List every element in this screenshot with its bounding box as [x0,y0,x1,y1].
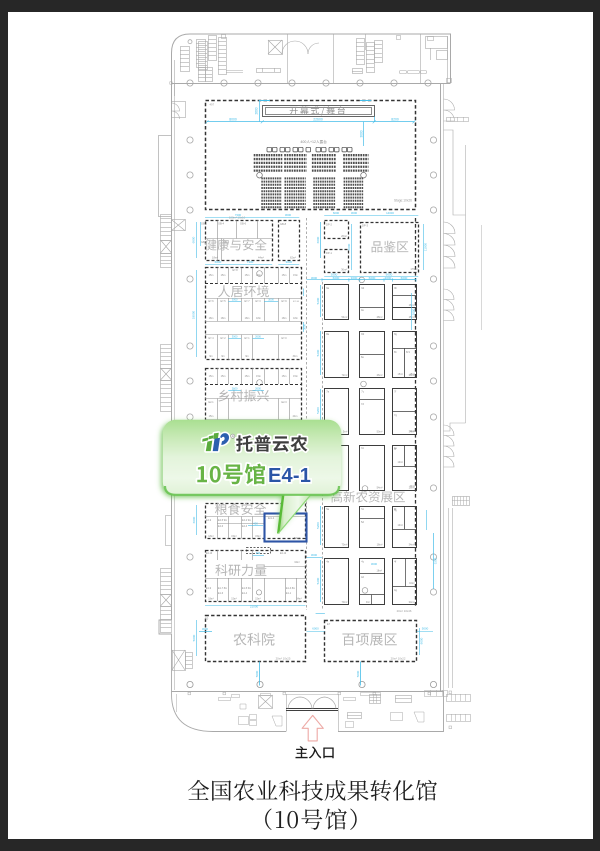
svg-text:2600: 2600 [255,107,259,114]
svg-text:26m²: 26m² [341,234,347,238]
svg-text:15m²: 15m² [231,598,237,601]
svg-text:E1-3 8m: E1-3 8m [286,587,295,590]
svg-text:18000: 18000 [192,310,196,319]
svg-text:20m² 10x25: 20m² 10x25 [276,657,291,661]
svg-text:3000: 3000 [311,276,318,280]
svg-text:E7-3: E7-3 [255,300,261,303]
svg-text:E1-9: E1-9 [206,587,212,590]
svg-text:3000: 3000 [285,213,292,217]
svg-text:E4-10: E4-10 [206,553,213,555]
svg-text:15m: 15m [209,415,214,418]
svg-text:E7-0: E7-0 [281,337,287,340]
svg-text:62m²: 62m² [290,256,296,260]
svg-text:3000: 3000 [202,627,209,631]
svg-text:6f: 6f [394,448,396,451]
svg-text:7a: 7a [326,390,329,394]
svg-text:6800: 6800 [192,236,196,243]
svg-text:3000: 3000 [385,276,392,280]
svg-text:8e: 8e [361,355,364,359]
svg-text:E7-8: E7-8 [232,269,238,272]
svg-text:8i 9: 8i 9 [406,351,411,354]
svg-text:15m: 15m [245,375,250,378]
svg-text:34m: 34m [293,355,298,358]
svg-text:8a: 8a [326,332,329,336]
svg-text:E1-5 6m: E1-5 6m [242,587,251,590]
svg-text:34m²: 34m² [409,600,415,604]
svg-text:7c: 7c [361,390,364,394]
svg-text:3000: 3000 [351,211,358,215]
svg-text:GB-2: GB-2 [201,222,208,226]
svg-text:7g: 7g [394,413,397,417]
svg-text:E7-10: E7-10 [293,301,300,303]
svg-text:5200: 5200 [316,577,320,584]
svg-text:54m²: 54m² [294,536,300,540]
svg-text:E4-12: E4-12 [280,553,287,555]
svg-text:34m²: 34m² [409,543,415,547]
svg-text:9m: 9m [209,355,212,358]
svg-text:176m²: 176m² [410,267,417,271]
svg-text:E1-4: E1-4 [242,592,248,595]
svg-text:8200: 8200 [391,118,399,122]
svg-text:5200: 5200 [316,297,320,304]
svg-text:18m: 18m [245,317,250,320]
svg-text:54m²: 54m² [341,315,347,319]
svg-text:3000: 3000 [232,298,238,302]
svg-text:5m²: 5m² [343,430,348,434]
svg-text:E4-3: E4-3 [242,525,248,528]
svg-text:2600: 2600 [255,335,261,339]
svg-text:E7-6: E7-6 [208,300,214,303]
svg-text:E4-1: E4-1 [268,516,275,520]
svg-text:15m: 15m [293,274,298,277]
svg-text:E7-1: E7-1 [244,337,250,340]
svg-text:5000: 5000 [356,670,360,677]
svg-text:7f: 7f [394,390,396,394]
svg-text:6000: 6000 [369,276,376,280]
svg-text:6000: 6000 [347,243,351,250]
svg-text:E4-6: E4-6 [218,525,224,528]
svg-text:15m²: 15m² [398,373,404,376]
svg-text:20m² 10x22: 20m² 10x22 [391,657,406,661]
svg-text:15m: 15m [245,274,250,277]
svg-text:11000: 11000 [423,243,427,251]
svg-text:15m: 15m [256,375,261,378]
svg-text:9000: 9000 [419,637,423,644]
svg-text:9h: 9h [394,286,397,290]
svg-text:400: 400 [253,521,258,525]
svg-text:4c: 4c [361,560,364,564]
svg-text:20m² 10x46: 20m² 10x46 [397,609,412,613]
svg-text:15m²: 15m² [231,535,237,538]
svg-text:5200: 5200 [316,349,320,356]
svg-text:6000: 6000 [215,260,222,264]
svg-text:70m²: 70m² [341,543,347,547]
svg-text:5g: 5g [394,509,397,512]
svg-text:4f: 4f [394,560,396,564]
svg-text:21000: 21000 [250,605,259,609]
svg-text:3000: 3000 [411,308,415,315]
svg-text:E7-2: E7-2 [220,337,226,340]
svg-text:54m²: 54m² [377,486,383,490]
svg-text:15m²: 15m² [255,598,261,601]
svg-text:18m: 18m [209,317,214,320]
svg-text:E7-4: E7-4 [208,337,214,340]
svg-text:34m²: 34m² [294,561,300,564]
svg-text:26m²: 26m² [377,373,383,377]
svg-text:36m²: 36m² [341,268,347,272]
svg-text:100m² 10x10: 100m² 10x10 [229,216,246,220]
svg-text:15m²: 15m² [255,535,261,538]
svg-text:3000: 3000 [268,298,274,302]
svg-text:600: 600 [256,551,261,555]
svg-text:5000: 5000 [192,634,196,641]
svg-text:15m: 15m [282,274,287,277]
svg-text:GB-8: GB-8 [280,222,287,226]
svg-text:8000: 8000 [229,118,237,122]
svg-text:18m²: 18m² [212,256,218,260]
svg-text:16m²: 16m² [409,582,414,585]
svg-text:E7-5: E7-5 [220,300,226,303]
svg-text:3000: 3000 [285,260,292,264]
svg-text:E7: E7 [327,622,331,626]
svg-text:5000: 5000 [422,627,429,631]
svg-text:2600: 2600 [232,386,238,390]
svg-text:22600: 22600 [313,118,323,122]
svg-text:15m: 15m [293,375,298,378]
svg-text:3000: 3000 [351,276,358,280]
svg-text:6000: 6000 [333,211,340,215]
svg-text:E4-2 9m: E4-2 9m [242,519,251,522]
svg-text:GB-6: GB-6 [240,222,247,226]
svg-text:6c: 6c [361,446,364,450]
svg-text:70m²: 70m² [341,600,347,604]
svg-text:E0: E0 [205,617,209,621]
svg-text:15m: 15m [209,375,214,378]
svg-text:10m²: 10m² [398,524,404,527]
svg-text:18m²: 18m² [208,535,214,538]
svg-text:2600: 2600 [255,386,261,390]
svg-text:9m²: 9m² [366,601,370,604]
svg-text:6000: 6000 [316,236,320,243]
svg-text:10m²: 10m² [398,461,404,464]
svg-text:14m²: 14m² [410,430,416,433]
svg-text:5200: 5200 [433,557,437,564]
svg-text:15m: 15m [256,274,261,277]
svg-text:4d: 4d [361,575,364,579]
svg-text:18m: 18m [221,317,226,320]
svg-text:E2-3: E2-3 [281,401,287,404]
svg-text:9m: 9m [221,355,224,358]
svg-text:E1-6: E1-6 [218,592,224,595]
svg-text:15m: 15m [221,375,226,378]
svg-text:9d: 9d [361,286,364,290]
svg-text:DP-1: DP-1 [326,251,332,255]
svg-text:3000: 3000 [232,335,238,339]
svg-text:24m: 24m [293,415,298,418]
svg-text:GB-4: GB-4 [218,222,225,226]
svg-text:6000: 6000 [401,276,408,280]
svg-text:3000: 3000 [371,562,378,566]
svg-text:9e: 9e [361,308,364,312]
svg-text:Stage:10x26: Stage:10x26 [394,199,412,203]
svg-text:E4-5 9m: E4-5 9m [218,519,227,522]
svg-text:7300: 7300 [247,260,254,264]
svg-text:7d: 7d [361,402,364,406]
svg-text:E1-1: E1-1 [286,592,292,595]
svg-text:15m: 15m [282,375,287,378]
svg-text:E2-1: E2-1 [208,401,214,404]
svg-text:3000: 3000 [303,324,307,330]
svg-text:4g: 4g [394,588,397,592]
svg-text:6000: 6000 [312,627,319,631]
svg-text:E4-9: E4-9 [206,519,212,522]
svg-text:34m²: 34m² [296,598,302,601]
svg-text:72m²: 72m² [341,373,347,377]
svg-text:15m: 15m [209,274,214,277]
svg-text:8h: 8h [394,351,397,354]
svg-text:18m²: 18m² [377,570,383,573]
svg-text:8g: 8g [394,332,397,336]
svg-text:497: 497 [210,103,215,107]
svg-text:E7-9: E7-9 [281,300,287,303]
svg-text:5200: 5200 [316,407,320,414]
svg-text:28m²: 28m² [377,315,383,319]
svg-text:15m²: 15m² [410,373,416,376]
svg-text:E1-7 8m: E1-7 8m [218,587,227,590]
svg-text:6000: 6000 [192,516,196,523]
svg-text:44m²: 44m² [258,256,264,260]
svg-text:3000: 3000 [359,130,363,137]
svg-text:E4-1: E4-1 [268,465,311,487]
svg-text:4a: 4a [326,560,329,564]
svg-text:5d: 5d [361,520,364,524]
svg-text:5200: 5200 [316,522,320,529]
svg-text:8d: 8d [361,332,364,336]
svg-text:5a: 5a [326,507,329,511]
svg-text:9a: 9a [326,286,329,290]
svg-text:5000: 5000 [255,670,259,677]
svg-text:18m²: 18m² [377,543,383,547]
svg-text:3000: 3000 [311,553,318,557]
svg-text:18m: 18m [293,317,298,320]
svg-text:15m: 15m [221,274,226,277]
svg-text:400人+12人露台: 400人+12人露台 [300,139,327,144]
svg-text:9m: 9m [245,355,248,358]
svg-text:18m: 18m [282,317,287,320]
svg-text:6000: 6000 [333,276,340,280]
svg-text:34m²: 34m² [410,485,416,488]
svg-text:DP-2: DP-2 [326,223,332,227]
svg-text:18m²: 18m² [208,598,214,601]
svg-text:50m²: 50m² [377,430,383,434]
svg-text:18m: 18m [256,317,261,320]
svg-text:DP-3: DP-3 [362,224,368,228]
svg-text:5c: 5c [361,507,364,511]
svg-text:E7-7: E7-7 [244,300,250,303]
svg-text:14000: 14000 [386,211,394,215]
